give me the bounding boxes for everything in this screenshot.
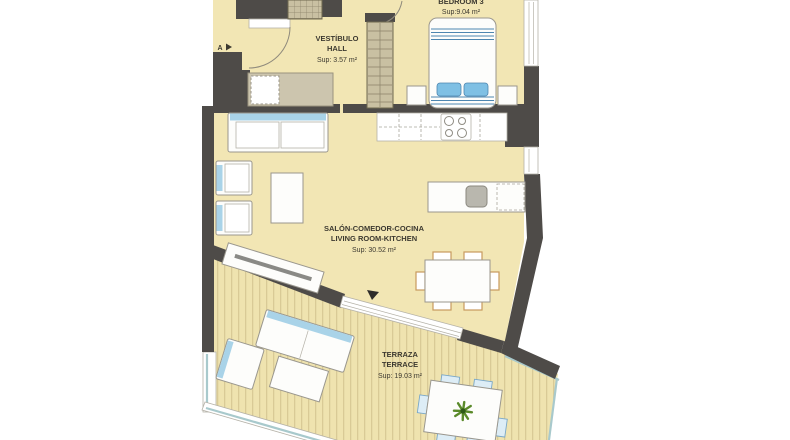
dining-table xyxy=(425,260,490,302)
sofa-back-cushion xyxy=(230,114,326,121)
wall-entry-top xyxy=(236,0,288,19)
living-label-en: LIVING ROOM-KITCHEN xyxy=(331,234,417,243)
hall-area-label: Sup: 3.57 m² xyxy=(317,57,358,64)
sofa-seat-right xyxy=(281,122,324,148)
terrace-label-es: TERRAZA xyxy=(382,350,418,359)
wall-wardrobe-cap xyxy=(365,13,395,22)
armchair-1-cushion xyxy=(217,165,223,191)
bedroom3-label: BEDROOM 3 xyxy=(438,0,483,6)
floor-plan-page: VESTÍBULO HALL Sup: 3.57 m² BEDROOM 3 Su… xyxy=(0,0,790,440)
wall-kitchen-right xyxy=(505,104,524,147)
armchair-2-seat xyxy=(225,204,249,232)
armchair-1-seat xyxy=(225,164,249,192)
coffee-table xyxy=(271,173,303,223)
entry-door-leaf xyxy=(249,19,290,28)
nightstand-right xyxy=(498,86,517,105)
bedroom3-area-label: Sup:9.04 m² xyxy=(442,9,481,16)
sofa-seat-left xyxy=(236,122,279,148)
dining-chair xyxy=(490,272,499,290)
wall-right-upper xyxy=(524,66,539,147)
nightstand-left xyxy=(407,86,426,105)
wall-closet-right xyxy=(322,0,342,17)
window-bedroom xyxy=(524,0,538,66)
hall-closet xyxy=(288,0,322,19)
living-area-label: Sup: 30.52 m² xyxy=(352,247,397,254)
hall-label-es: VESTÍBULO xyxy=(316,34,359,43)
dining-set-indoor xyxy=(416,252,499,310)
floor-plan-drawing: VESTÍBULO HALL Sup: 3.57 m² BEDROOM 3 Su… xyxy=(0,0,790,440)
sink xyxy=(466,186,487,207)
pillow-left xyxy=(437,83,461,96)
washing-machine xyxy=(251,76,279,104)
armchair-2-cushion xyxy=(217,205,223,231)
pillow-right xyxy=(464,83,488,96)
living-label-es: SALÓN-COMEDOR-COCINA xyxy=(324,224,425,233)
dining-chair xyxy=(416,272,425,290)
hall-label-en: HALL xyxy=(327,44,347,53)
wall-left xyxy=(202,106,214,352)
terrace-label-en: TERRACE xyxy=(382,360,418,369)
bedroom3-area xyxy=(367,18,517,108)
terrace-area-label: Sup: 19.03 m² xyxy=(378,373,423,380)
window-living xyxy=(524,147,538,174)
section-marker-a-label: A xyxy=(217,45,222,52)
